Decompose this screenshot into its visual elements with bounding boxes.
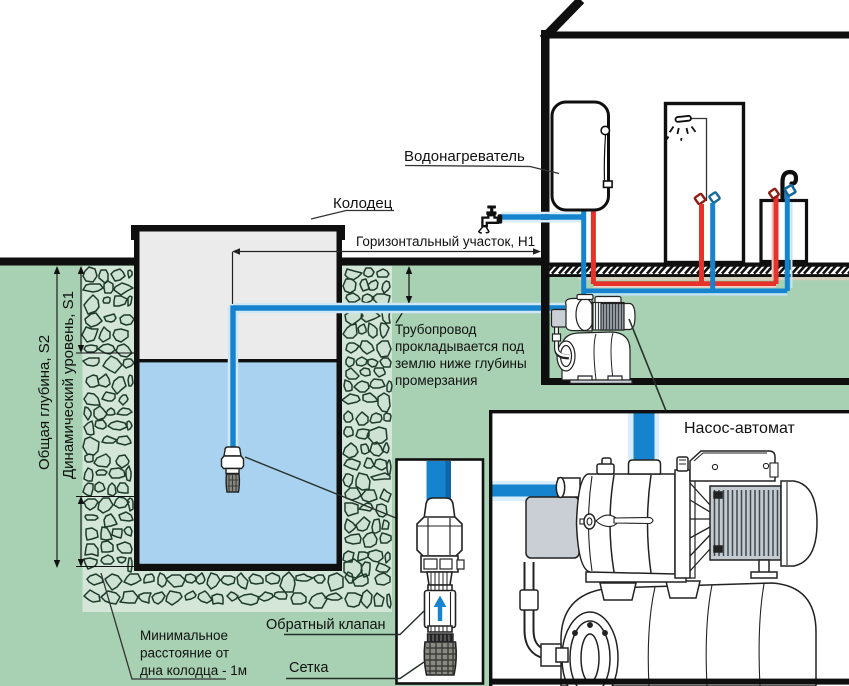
svg-text:Трубопровод: Трубопровод xyxy=(395,322,477,337)
svg-text:промерзания: промерзания xyxy=(395,373,477,388)
svg-text:расстояние от: расстояние от xyxy=(140,646,229,661)
svg-text:дна колодца - 1м: дна колодца - 1м xyxy=(140,663,247,678)
svg-text:Горизонтальный участок, Н1: Горизонтальный участок, Н1 xyxy=(356,234,535,249)
svg-text:Минимальное: Минимальное xyxy=(140,628,228,643)
svg-text:землю ниже глубины: землю ниже глубины xyxy=(395,356,527,371)
svg-text:Динамический уровень, S1: Динамический уровень, S1 xyxy=(60,291,77,479)
svg-text:Водонагреватель: Водонагреватель xyxy=(404,148,525,165)
svg-text:Обратный клапан: Обратный клапан xyxy=(266,617,386,633)
svg-text:Насос-автомат: Насос-автомат xyxy=(684,420,796,437)
svg-text:прокладывается под: прокладывается под xyxy=(395,339,524,354)
svg-text:Общая глубина, S2: Общая глубина, S2 xyxy=(36,335,53,470)
svg-text:Сетка: Сетка xyxy=(289,660,329,676)
svg-text:Колодец: Колодец xyxy=(333,195,393,212)
